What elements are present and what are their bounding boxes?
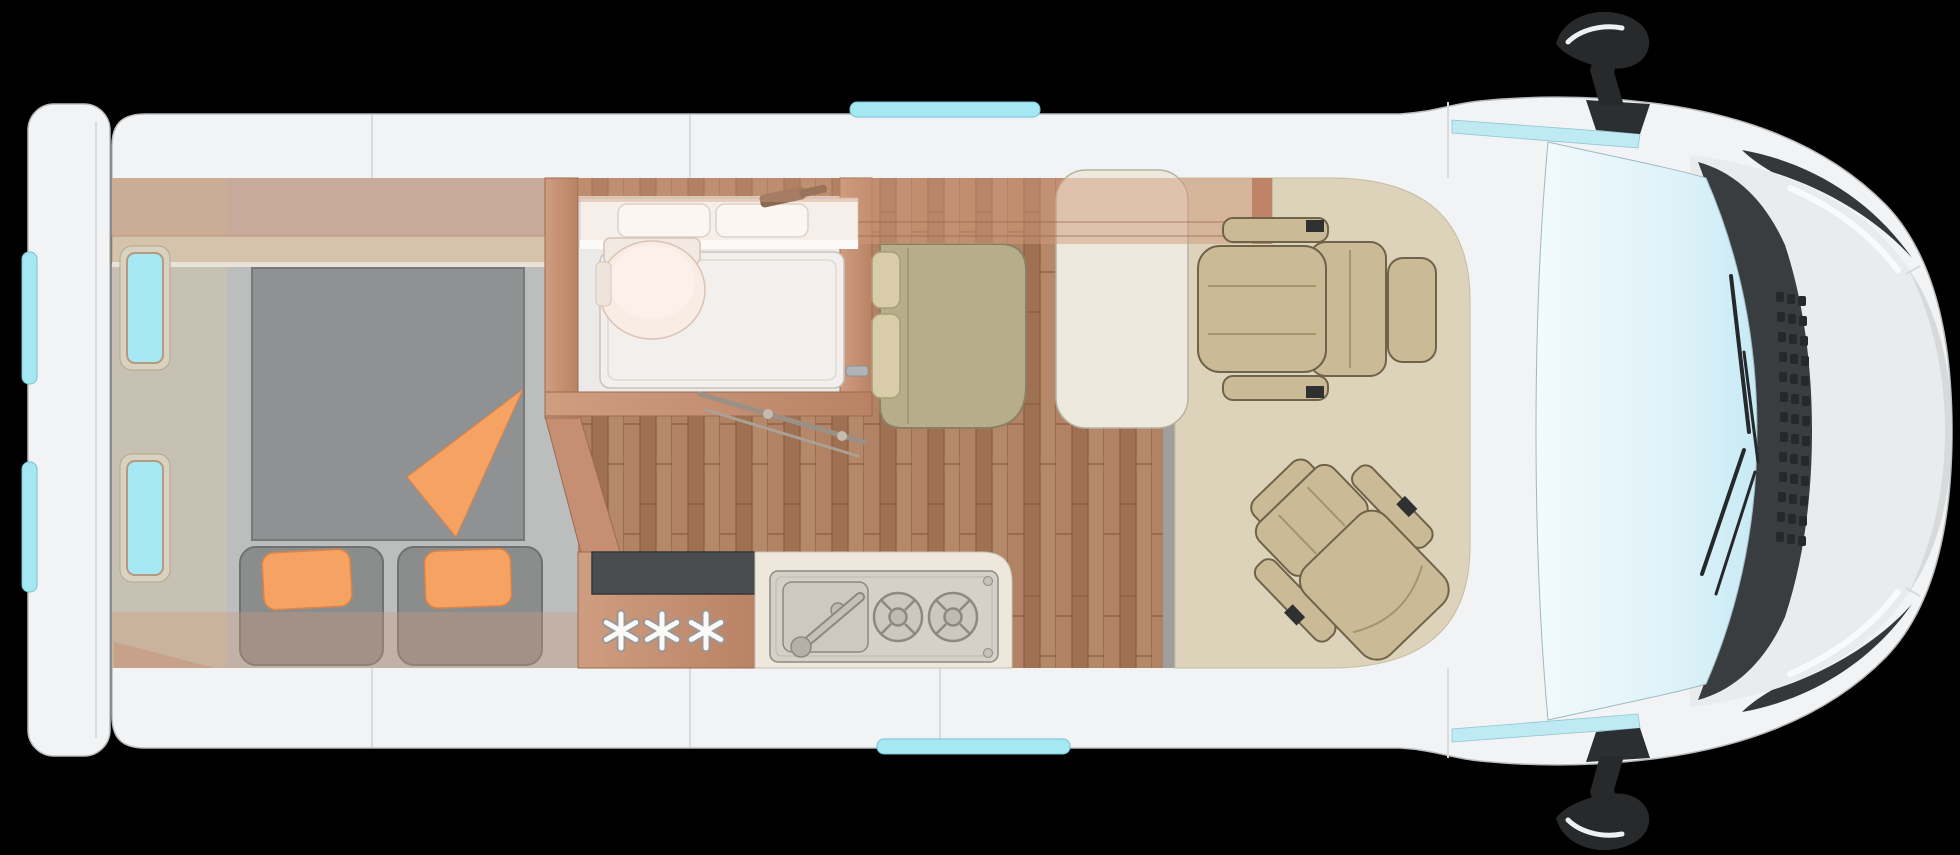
overhead-locker-dinette	[858, 178, 1273, 244]
hob-burner-left	[874, 593, 922, 641]
seat1-cushion	[1198, 246, 1326, 372]
unit-screw-bottom	[984, 649, 993, 658]
shelf-edge	[112, 262, 578, 267]
wash-basin-left	[618, 204, 710, 237]
unit-screw-top	[984, 577, 993, 586]
hob-burner-right	[929, 593, 977, 641]
bed-mattress	[252, 268, 524, 540]
bathroom	[545, 178, 872, 456]
bench-headrest-1	[872, 252, 900, 308]
bedroom-window-1	[120, 246, 170, 370]
overhead-locker-bathroom	[578, 178, 858, 202]
kitchen-block: ***	[578, 552, 1012, 668]
van-rear-doors	[22, 104, 110, 756]
side-window-strip-top	[850, 102, 1040, 117]
rear-window-left	[22, 252, 37, 384]
bedroom-window-2	[120, 454, 170, 582]
freezer-stars-icon: ***	[606, 614, 720, 648]
fridge-worktop	[592, 552, 755, 594]
bathroom-wall-left	[545, 178, 578, 418]
toilet-flush-panel	[596, 262, 611, 306]
windshield	[1536, 142, 1757, 720]
side-window-strip-bottom	[877, 739, 1070, 754]
toilet-lid	[609, 245, 695, 319]
pillow-left	[262, 549, 353, 611]
wash-basin-right	[716, 204, 808, 237]
seat1-mount-top	[1306, 220, 1324, 232]
seat1-headrest	[1388, 258, 1436, 362]
seat1-mount-bottom	[1306, 386, 1324, 398]
travel-bench-seat	[880, 244, 1026, 428]
bench-headrest-2	[872, 314, 900, 398]
rear-window-right	[22, 462, 37, 592]
rear-shelf	[112, 236, 578, 264]
overhead-locker-rear	[112, 178, 578, 236]
pillow-right	[424, 549, 512, 609]
campervan-floorplan: Campervan floor plan - top view, cab at …	[0, 0, 1960, 855]
door-hinge	[846, 366, 868, 376]
